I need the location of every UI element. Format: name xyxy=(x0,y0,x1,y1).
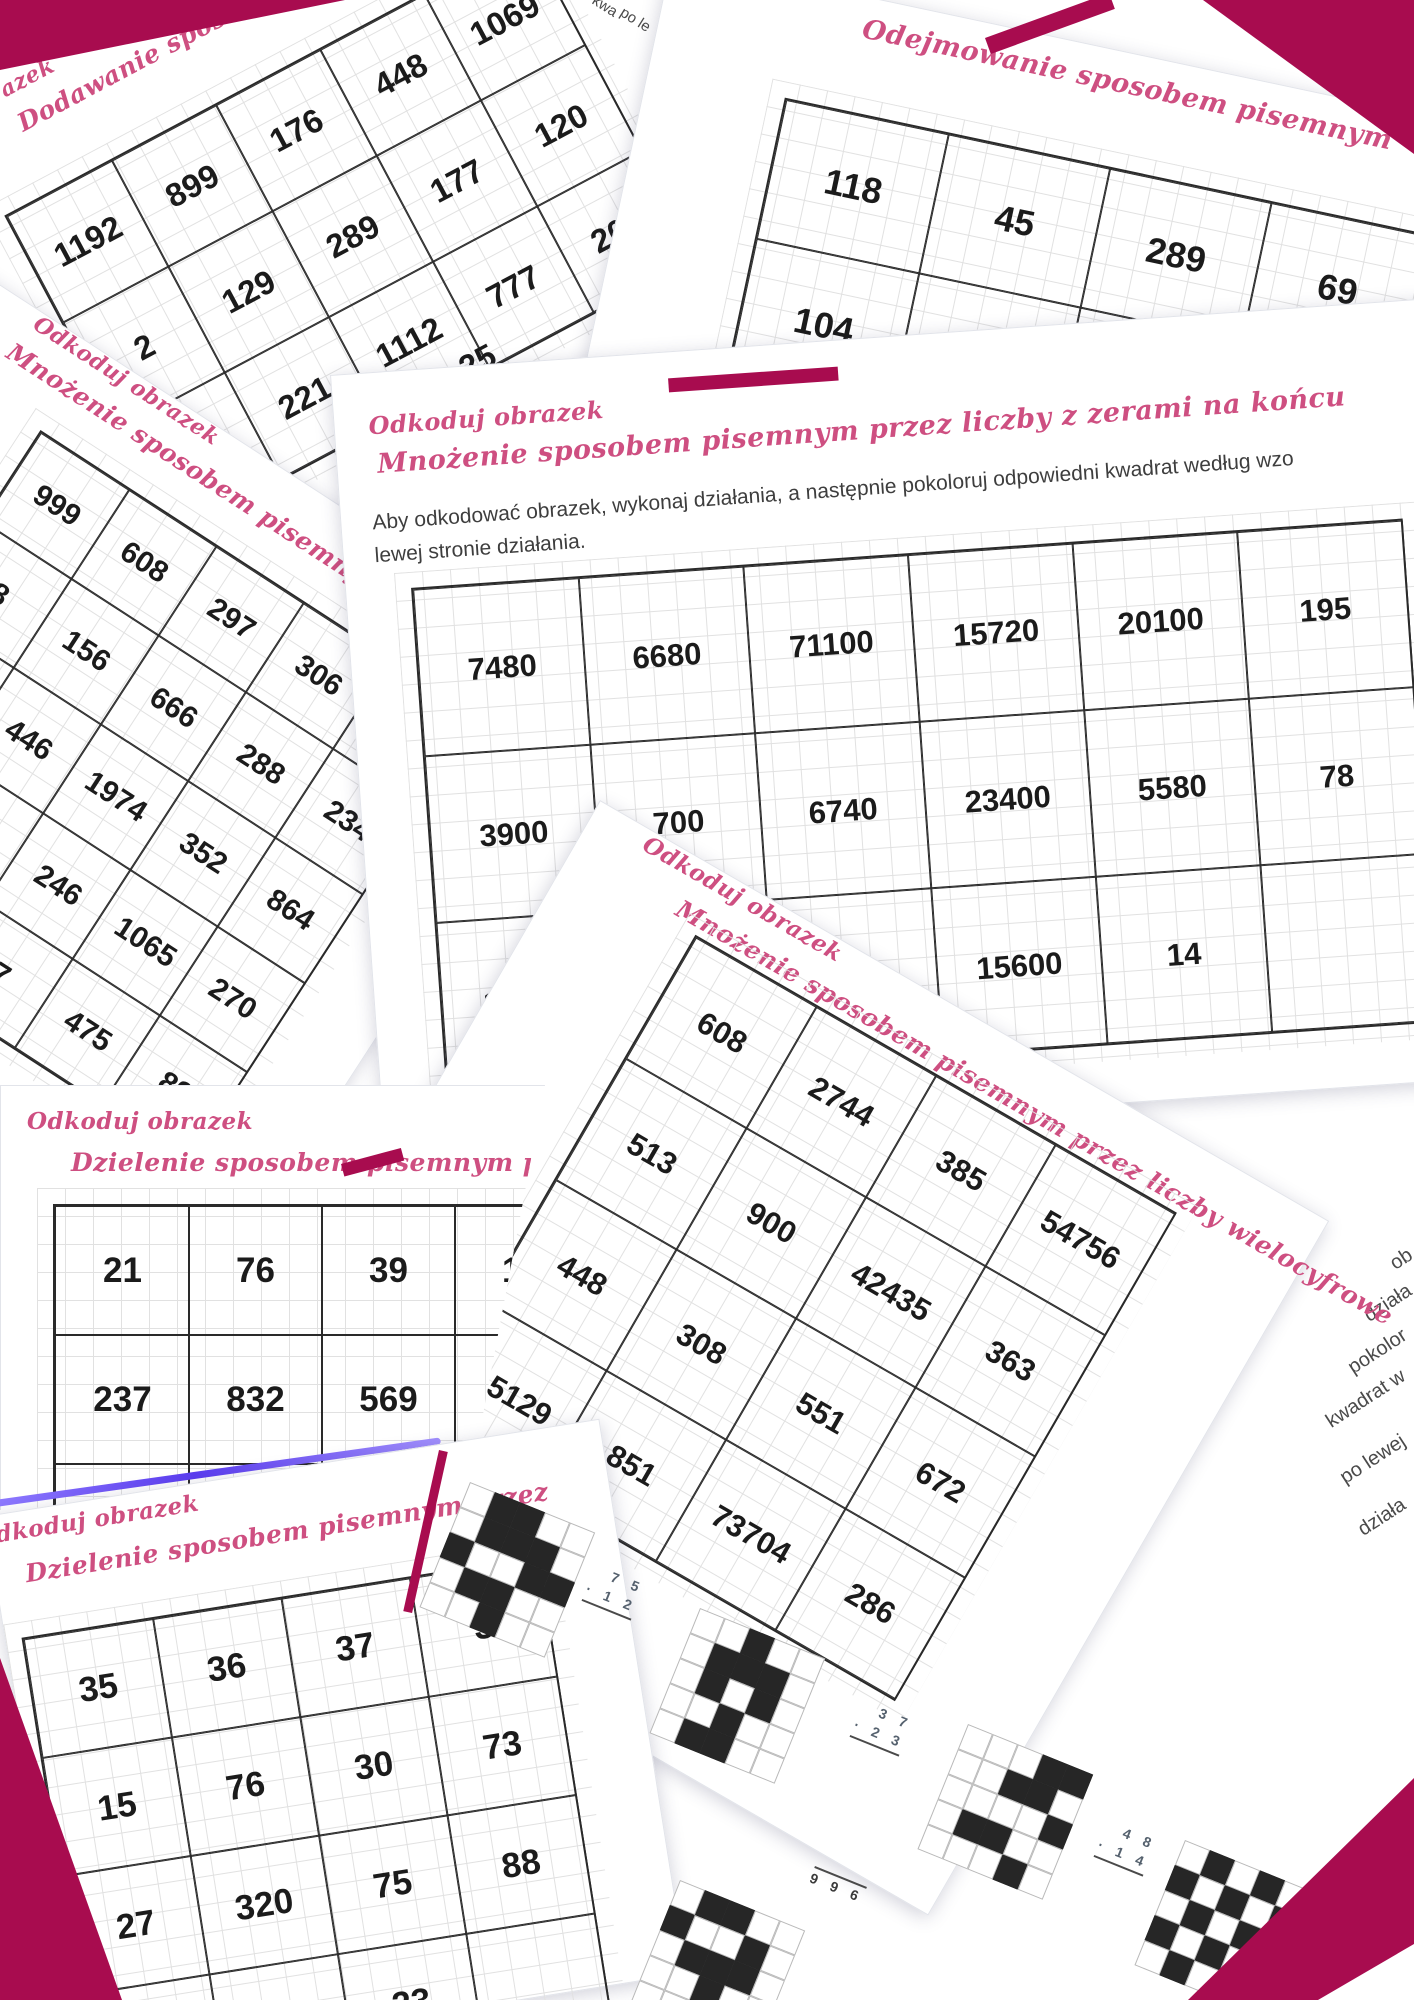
grid-cell: 20100 xyxy=(1072,532,1250,710)
grid-cell: 35 xyxy=(24,1619,173,1758)
grid-cell: 21 xyxy=(55,1206,190,1335)
accent-bar xyxy=(668,367,839,393)
grid-cell: 30 xyxy=(299,1697,448,1836)
worksheet-collage: azek Dodawanie sposobem pisemnym 1192899… xyxy=(0,0,1414,2000)
grid-cell: 5580 xyxy=(1083,699,1261,877)
side-fragment-6: działa xyxy=(1354,1494,1410,1542)
grid-cell: 7480 xyxy=(413,578,591,756)
grid-cell: 36 xyxy=(152,1598,301,1737)
grid-cell: 39 xyxy=(321,1206,456,1335)
grid-cell: 78 xyxy=(1248,687,1414,865)
grid-cell: 71100 xyxy=(742,555,920,733)
grid-cell xyxy=(1259,854,1414,1032)
side-fragment-1: ob xyxy=(1386,1244,1414,1275)
grid-cell: 23400 xyxy=(919,710,1097,888)
page-title: Odkoduj obrazek xyxy=(27,1108,253,1135)
grid-cell: 88 xyxy=(447,1795,596,1934)
grid-cell: 195 xyxy=(1236,521,1414,699)
page-dzielenie-2: Odkoduj obrazek Dzielenie sposobem pisem… xyxy=(0,1419,687,2000)
side-fragment-4: kwadrat w xyxy=(1322,1365,1410,1433)
grid-cell: 832 xyxy=(188,1335,323,1464)
grid-cell: 76 xyxy=(171,1717,320,1856)
multiplication-exercise-3: 4 8 · 1 4 xyxy=(1094,1816,1159,1876)
grid-cell: 73 xyxy=(428,1676,577,1815)
grid-cell: 14 xyxy=(1095,865,1273,1043)
grid-cell: 15720 xyxy=(907,544,1085,722)
page-title: Odkoduj obrazek xyxy=(368,395,605,440)
grid-cell: 237 xyxy=(55,1335,190,1464)
grid-cell: 320 xyxy=(190,1836,339,1975)
grid-cell: 6740 xyxy=(754,722,932,900)
grid-cell: 76 xyxy=(188,1206,323,1335)
grid-cell: 6680 xyxy=(578,567,756,745)
grid-cell: 75 xyxy=(318,1815,467,1954)
side-fragment-5: po lewej xyxy=(1336,1430,1410,1489)
